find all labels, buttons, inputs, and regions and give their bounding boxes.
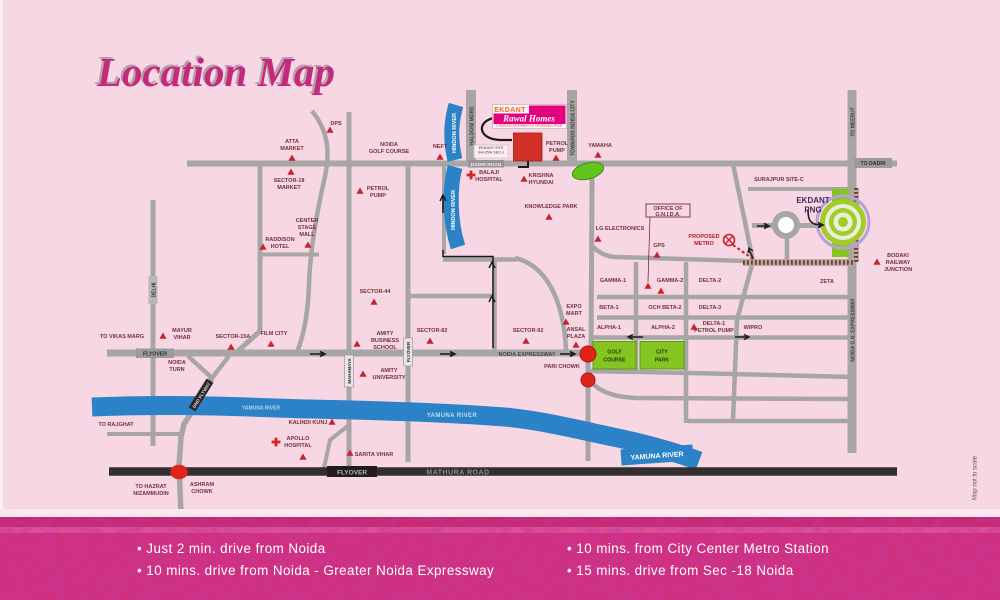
svg-text:TO MEERUT: TO MEERUT bbox=[851, 107, 857, 136]
svg-text:RAILWAY: RAILWAY bbox=[886, 260, 911, 266]
svg-text:NEFT: NEFT bbox=[433, 144, 448, 150]
svg-text:CHOWK: CHOWK bbox=[191, 489, 212, 495]
svg-text:HINDON RIVER: HINDON RIVER bbox=[451, 190, 457, 230]
svg-text:HOSPITAL: HOSPITAL bbox=[475, 177, 503, 183]
svg-text:ASHRAM: ASHRAM bbox=[190, 482, 215, 488]
svg-text:HOTEL: HOTEL bbox=[271, 244, 290, 250]
svg-text:EKDANT: EKDANT bbox=[796, 196, 829, 205]
svg-text:COURSE: COURSE bbox=[603, 358, 626, 364]
svg-text:TO DADRI: TO DADRI bbox=[861, 161, 887, 167]
svg-text:NIZAMMUDIN: NIZAMMUDIN bbox=[133, 491, 168, 497]
svg-text:SCHOOL: SCHOOL bbox=[373, 345, 397, 351]
svg-text:PARI CHOWK: PARI CHOWK bbox=[544, 364, 580, 370]
svg-text:EKDANT SITE: EKDANT SITE bbox=[479, 146, 504, 150]
svg-text:Location Map: Location Map bbox=[96, 49, 335, 95]
svg-text:WIPRO: WIPRO bbox=[744, 325, 763, 331]
svg-text:• 10 mins. drive from Noida -: • 10 mins. drive from Noida - Greater No… bbox=[137, 563, 494, 578]
svg-text:TO VIKAS MARG: TO VIKAS MARG bbox=[100, 334, 144, 340]
svg-text:DADRI ROAD: DADRI ROAD bbox=[471, 162, 502, 168]
svg-text:KRISHNA: KRISHNA bbox=[528, 173, 553, 179]
svg-text:SECTOR-15A: SECTOR-15A bbox=[216, 334, 251, 340]
svg-text:HINDON RIVER: HINDON RIVER bbox=[452, 113, 458, 153]
svg-text:RADDISON: RADDISON bbox=[265, 237, 294, 243]
svg-text:ALPHA-2: ALPHA-2 bbox=[651, 325, 675, 331]
svg-text:Rawal Homes: Rawal Homes bbox=[502, 114, 555, 124]
svg-text:NOIDA: NOIDA bbox=[168, 360, 186, 366]
svg-text:UNIVERSITY: UNIVERSITY bbox=[372, 375, 405, 381]
svg-text:CITY: CITY bbox=[656, 350, 668, 356]
svg-text:BETA-1: BETA-1 bbox=[599, 305, 618, 311]
svg-text:LUXURIOUS APARTMENTS AT AFFORD: LUXURIOUS APARTMENTS AT AFFORDABLE PRICE bbox=[496, 124, 562, 128]
svg-text:ATTA: ATTA bbox=[285, 139, 299, 145]
svg-text:HYUNDAI: HYUNDAI bbox=[528, 180, 554, 186]
svg-text:DPS: DPS bbox=[330, 121, 342, 127]
svg-text:OCH BETA-2: OCH BETA-2 bbox=[648, 305, 681, 311]
svg-text:SECTOR-82: SECTOR-82 bbox=[417, 328, 448, 334]
svg-text:PROPOSED: PROPOSED bbox=[688, 234, 719, 240]
svg-text:NOIDA: NOIDA bbox=[380, 142, 398, 148]
svg-text:MART: MART bbox=[566, 311, 583, 317]
svg-text:DELTA-1: DELTA-1 bbox=[703, 321, 725, 327]
svg-text:HOSPITAL: HOSPITAL bbox=[284, 443, 312, 449]
svg-text:• 10 mins. from City Center Me: • 10 mins. from City Center Metro Statio… bbox=[567, 541, 829, 556]
svg-text:MALL: MALL bbox=[299, 232, 315, 238]
svg-text:AMITY: AMITY bbox=[376, 331, 393, 337]
svg-text:LG ELECTRONICS: LG ELECTRONICS bbox=[596, 226, 645, 232]
svg-text:PNG: PNG bbox=[804, 206, 821, 215]
svg-text:ZETA: ZETA bbox=[820, 279, 834, 285]
svg-text:GH-05/A SEC-1: GH-05/A SEC-1 bbox=[478, 150, 505, 154]
svg-text:PLAZA: PLAZA bbox=[567, 334, 585, 340]
svg-text:FLYOVER: FLYOVER bbox=[406, 341, 411, 362]
svg-text:YAMAHA: YAMAHA bbox=[588, 143, 612, 149]
svg-text:GAMMA-2: GAMMA-2 bbox=[657, 278, 683, 284]
svg-text:SARITA VIHAR: SARITA VIHAR bbox=[355, 452, 394, 458]
svg-text:BUSINESS: BUSINESS bbox=[371, 338, 399, 344]
svg-text:ALPHA-1: ALPHA-1 bbox=[597, 325, 621, 331]
svg-text:CENTER: CENTER bbox=[296, 218, 319, 224]
svg-text:• 15 mins. drive from Sec -18: • 15 mins. drive from Sec -18 Noida bbox=[567, 563, 794, 578]
svg-text:SECTOR-18: SECTOR-18 bbox=[274, 178, 305, 184]
svg-text:MARKET: MARKET bbox=[280, 146, 304, 152]
svg-text:DELTA-2: DELTA-2 bbox=[699, 278, 721, 284]
svg-text:MAYUR: MAYUR bbox=[172, 328, 192, 334]
svg-text:EXPO: EXPO bbox=[566, 304, 582, 310]
svg-text:DELTA-3: DELTA-3 bbox=[699, 305, 721, 311]
svg-text:BALAJI: BALAJI bbox=[479, 170, 499, 176]
svg-text:DELHI: DELHI bbox=[152, 282, 158, 298]
svg-text:YAMUNA RIVER: YAMUNA RIVER bbox=[242, 406, 280, 412]
svg-text:NOIDA G.N. EXPRESSWAY: NOIDA G.N. EXPRESSWAY bbox=[851, 298, 857, 362]
svg-text:TURN: TURN bbox=[169, 367, 184, 373]
svg-text:FLYOVER: FLYOVER bbox=[143, 352, 167, 358]
svg-text:PETROL: PETROL bbox=[367, 186, 390, 192]
svg-text:SECTOR-44: SECTOR-44 bbox=[360, 289, 392, 295]
svg-text:Map not to scale: Map not to scale bbox=[973, 455, 979, 500]
svg-text:MAHAMAYA: MAHAMAYA bbox=[347, 358, 352, 384]
svg-text:PUMP: PUMP bbox=[549, 148, 565, 154]
svg-text:MARKET: MARKET bbox=[277, 185, 301, 191]
svg-text:STAGE: STAGE bbox=[298, 225, 317, 231]
svg-text:BODAKI: BODAKI bbox=[887, 253, 909, 259]
svg-text:TO RAJGHAT: TO RAJGHAT bbox=[98, 422, 134, 428]
svg-text:ANSAL: ANSAL bbox=[567, 327, 587, 333]
svg-text:METRO: METRO bbox=[694, 241, 715, 247]
svg-text:HALDONI MORE: HALDONI MORE bbox=[470, 106, 476, 146]
svg-text:FILM CITY: FILM CITY bbox=[261, 331, 288, 337]
svg-text:JUNCTION: JUNCTION bbox=[884, 267, 912, 273]
svg-text:GOLF: GOLF bbox=[607, 350, 621, 356]
svg-text:YAMUNA RIVER: YAMUNA RIVER bbox=[427, 413, 478, 419]
svg-text:TOWARDS NOIDA CITY: TOWARDS NOIDA CITY bbox=[571, 100, 577, 156]
svg-text:MATHURA ROAD: MATHURA ROAD bbox=[426, 470, 489, 477]
svg-text:PETROL PUMP: PETROL PUMP bbox=[694, 328, 734, 334]
svg-text:SECTOR-92: SECTOR-92 bbox=[513, 328, 544, 334]
svg-text:KNOWLEDGE PARK: KNOWLEDGE PARK bbox=[524, 204, 577, 210]
svg-text:PARK: PARK bbox=[655, 358, 670, 364]
svg-text:APOLLO: APOLLO bbox=[287, 436, 311, 442]
svg-text:NOIDA EXPRESSWAY: NOIDA EXPRESSWAY bbox=[498, 352, 555, 358]
svg-text:GPS: GPS bbox=[653, 243, 665, 249]
svg-text:PUMP: PUMP bbox=[370, 193, 386, 199]
svg-text:KALINDI KUNJ: KALINDI KUNJ bbox=[289, 420, 328, 426]
svg-text:• Just 2 min. drive from Noida: • Just 2 min. drive from Noida bbox=[137, 541, 326, 556]
svg-text:FLYOVER: FLYOVER bbox=[337, 470, 367, 477]
svg-text:GAMMA-1: GAMMA-1 bbox=[600, 278, 626, 284]
svg-text:AMITY: AMITY bbox=[380, 368, 397, 374]
svg-text:G.N.I.D.A.: G.N.I.D.A. bbox=[655, 212, 681, 218]
svg-text:SURAJPUR SITE-C: SURAJPUR SITE-C bbox=[754, 177, 804, 183]
svg-text:GOLF COURSE: GOLF COURSE bbox=[369, 149, 410, 155]
svg-text:TO HAZRAT: TO HAZRAT bbox=[135, 484, 167, 490]
svg-text:VIHAR: VIHAR bbox=[173, 335, 190, 341]
svg-text:PETROL: PETROL bbox=[546, 141, 569, 147]
